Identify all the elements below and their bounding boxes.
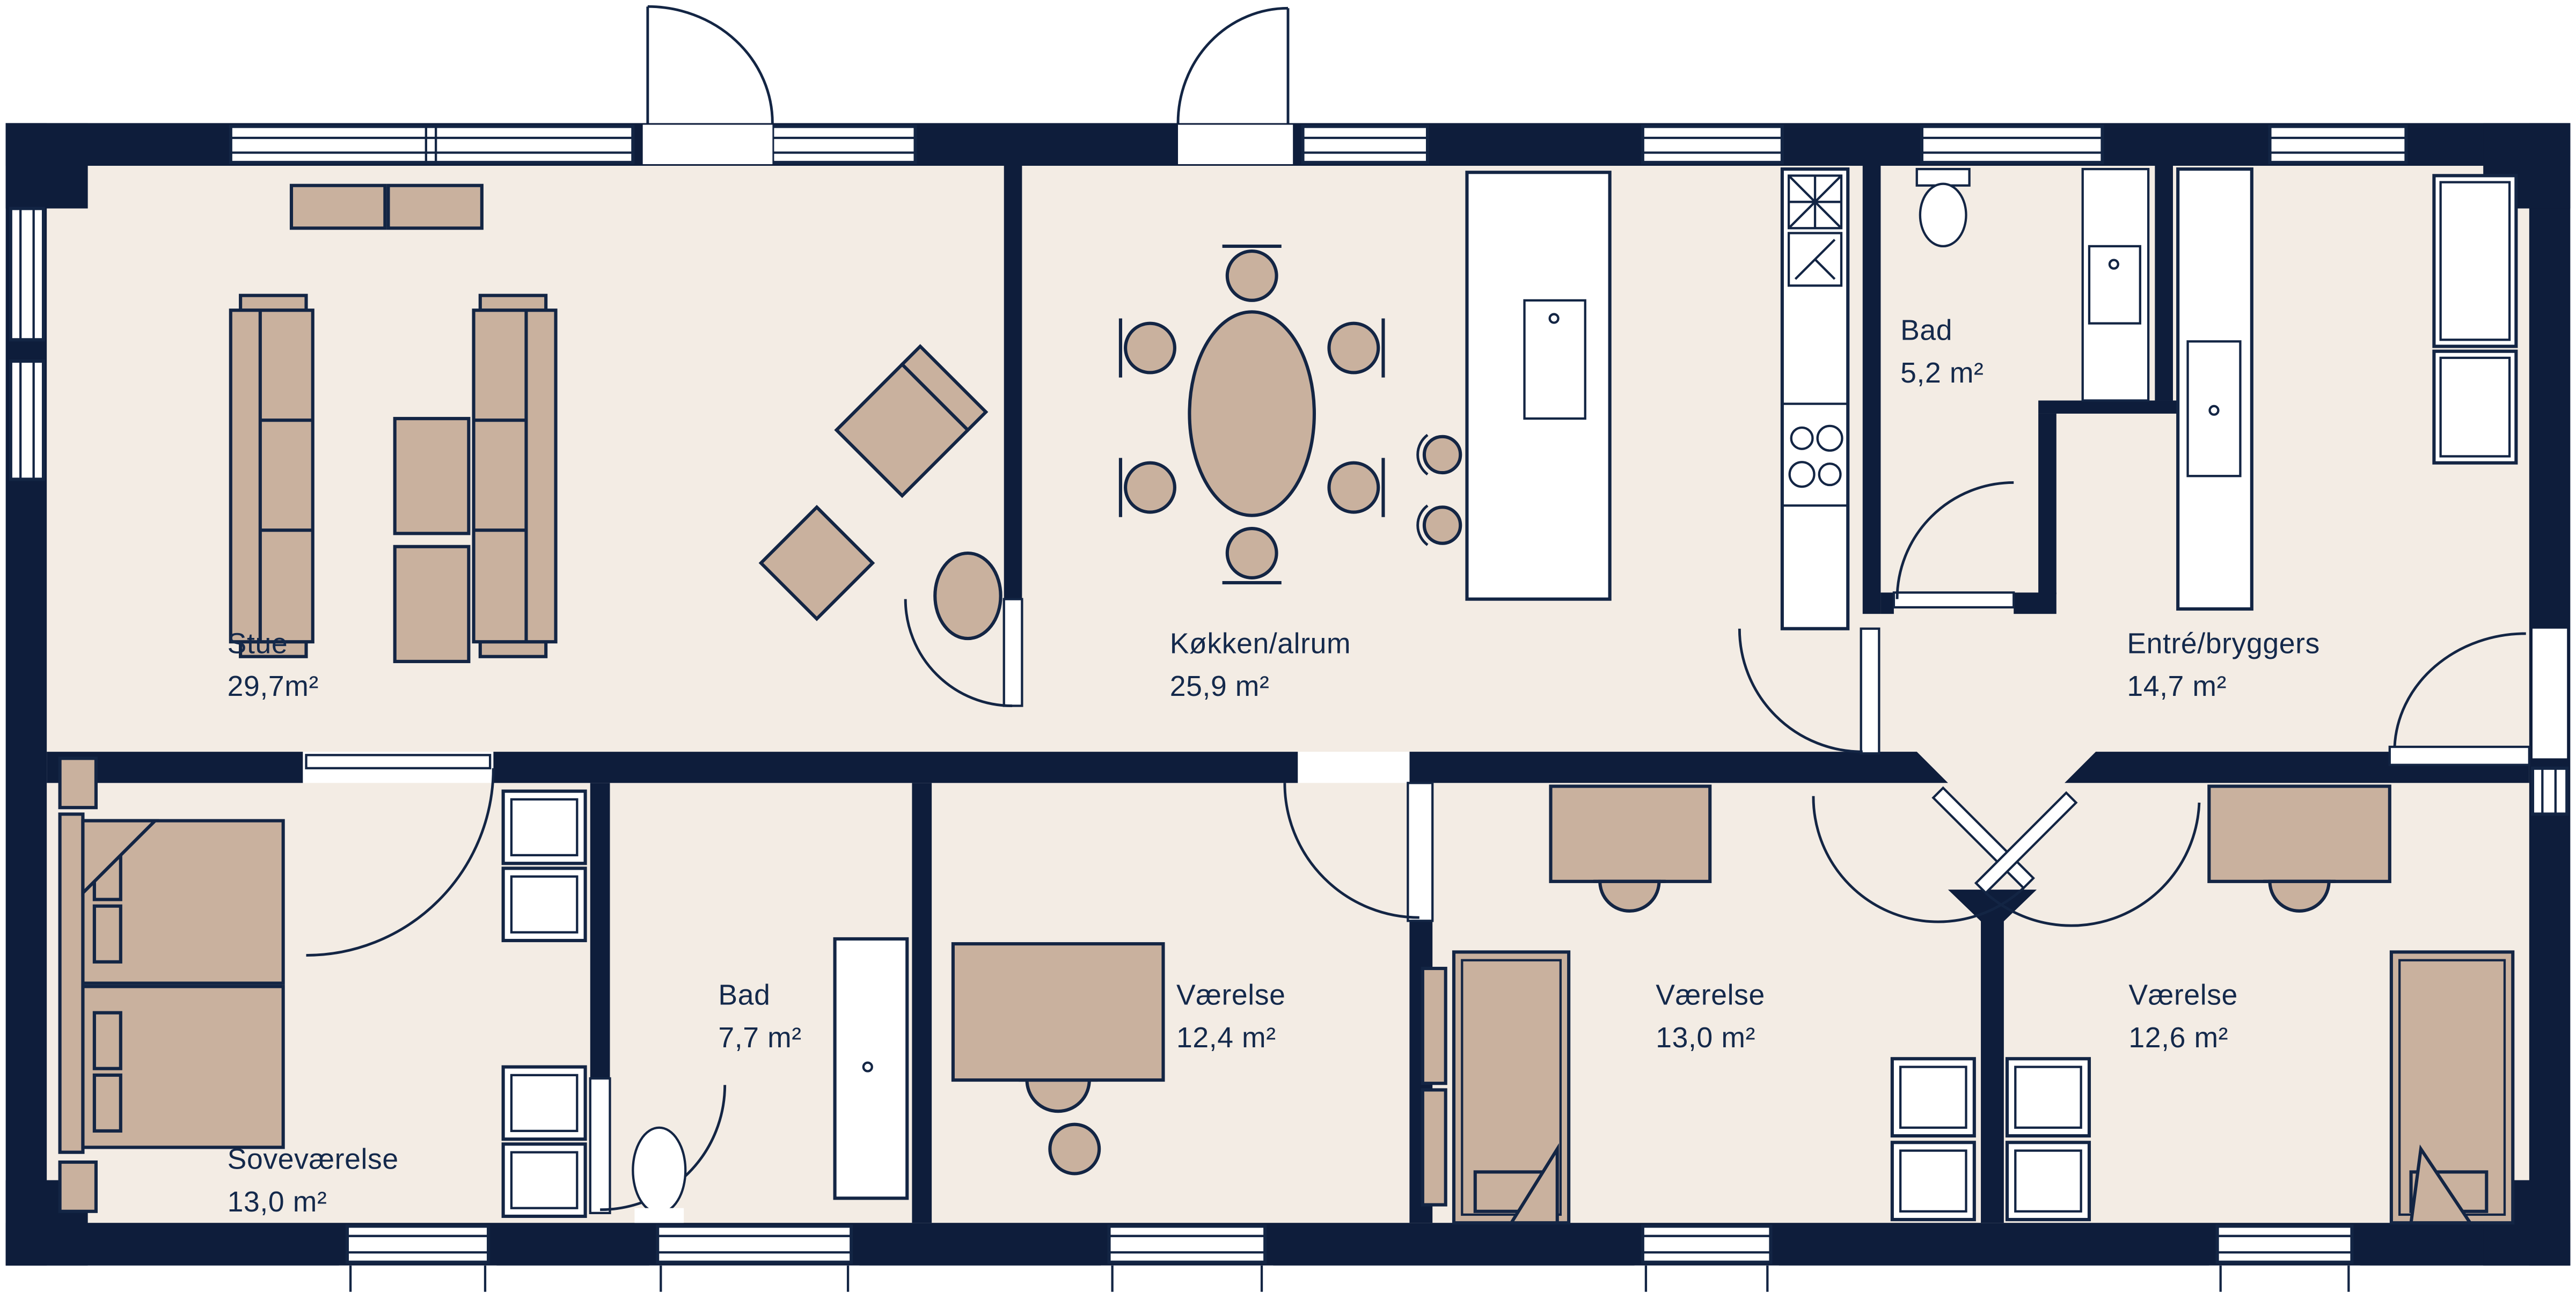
floorplan-svg: Stue 29,7m² Køkken/alrum 25,9 m² Bad 5,2… <box>0 0 2576 1300</box>
label-bad77-area: 7,7 m² <box>718 1022 801 1054</box>
window-bottom-5 <box>2209 1226 2360 1295</box>
washer-dryer <box>2434 175 2516 462</box>
sink-cabinet-top <box>2083 169 2148 400</box>
window-left-1 <box>11 209 43 340</box>
window-bottom-1 <box>339 1226 497 1295</box>
exterior-door-1 <box>643 6 773 164</box>
label-bad52-name: Bad <box>1900 314 1952 346</box>
window-top-3 <box>1303 127 1428 163</box>
exterior-door-2 <box>1178 8 1293 164</box>
toilet-bottom <box>633 1128 685 1223</box>
label-stue-area: 29,7m² <box>228 671 319 702</box>
label-v124-name: Værelse <box>1176 979 1286 1011</box>
window-bottom-2 <box>649 1226 860 1295</box>
label-entre-area: 14,7 m² <box>2127 671 2227 702</box>
window-top-6 <box>2270 127 2406 163</box>
single-bed-2 <box>2391 952 2513 1223</box>
kitchen-appliance-column <box>1782 169 1848 629</box>
floorplan-page: Stue 29,7m² Køkken/alrum 25,9 m² Bad 5,2… <box>0 0 2576 1300</box>
toilet-top <box>1917 169 1970 246</box>
window-top-4 <box>1643 127 1782 163</box>
label-entre-name: Entré/bryggers <box>2127 628 2320 660</box>
label-v130-area: 13,0 m² <box>1656 1022 1755 1054</box>
vanity-bad-77 <box>835 939 908 1198</box>
sofa-left <box>231 296 313 657</box>
window-left-2 <box>11 361 43 479</box>
side-table <box>935 553 1000 638</box>
label-v124-area: 12,4 m² <box>1176 1022 1276 1054</box>
label-v126-name: Værelse <box>2128 979 2238 1011</box>
sofa-right <box>474 296 556 657</box>
window-top-1 <box>231 127 633 163</box>
sideboard <box>291 186 482 229</box>
tall-cabinet <box>2178 169 2252 609</box>
label-sove-name: Soveværelse <box>228 1143 399 1175</box>
label-sove-area: 13,0 m² <box>228 1186 327 1218</box>
window-top-2 <box>772 127 915 163</box>
window-bottom-4 <box>1635 1226 1779 1295</box>
label-kokken-name: Køkken/alrum <box>1170 628 1351 660</box>
label-stue-name: Stue <box>228 628 288 660</box>
label-v130-name: Værelse <box>1656 979 1765 1011</box>
label-v126-area: 12,6 m² <box>2128 1022 2228 1054</box>
label-bad52-area: 5,2 m² <box>1900 357 1984 389</box>
label-bad77-name: Bad <box>718 979 770 1011</box>
label-kokken-area: 25,9 m² <box>1170 671 1270 702</box>
window-top-5 <box>1922 127 2103 163</box>
window-bottom-3 <box>1101 1226 1273 1295</box>
window-right-1 <box>2533 768 2567 814</box>
